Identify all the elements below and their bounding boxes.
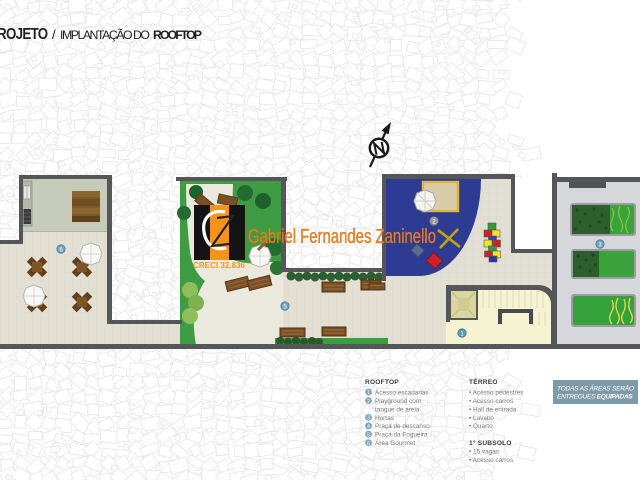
svg-text:tanque de areia: tanque de areia bbox=[375, 406, 420, 413]
svg-text:CRECI 32.836: CRECI 32.836 bbox=[193, 261, 246, 270]
svg-text:TÉRREO: TÉRREO bbox=[469, 377, 498, 386]
svg-text:Acesso escadarias: Acesso escadarias bbox=[375, 389, 429, 396]
svg-text:Área Gourmet: Área Gourmet bbox=[375, 438, 415, 447]
svg-text:• Acesso carros: • Acesso carros bbox=[469, 398, 513, 405]
svg-text:ENTREGUES EQUIPADAS: ENTREGUES EQUIPADAS bbox=[557, 394, 633, 401]
svg-text:/: / bbox=[52, 27, 56, 42]
svg-text:2: 2 bbox=[367, 399, 370, 405]
svg-text:5: 5 bbox=[367, 432, 370, 438]
svg-text:• Acesso pedestres: • Acesso pedestres bbox=[469, 389, 523, 396]
svg-text:3: 3 bbox=[367, 416, 370, 422]
svg-text:Praça de descanso: Praça de descanso bbox=[375, 423, 430, 430]
svg-text:1: 1 bbox=[367, 390, 370, 396]
svg-text:6: 6 bbox=[367, 441, 370, 447]
svg-text:Hortas: Hortas bbox=[375, 415, 394, 422]
svg-text:ROOFTOP: ROOFTOP bbox=[153, 28, 202, 42]
svg-text:IMPLANTAÇÃO DO: IMPLANTAÇÃO DO bbox=[60, 28, 150, 42]
svg-text:• Quarto: • Quarto bbox=[469, 423, 493, 430]
svg-text:ROOFTOP: ROOFTOP bbox=[365, 379, 399, 386]
svg-text:Praça da Fogueira: Praça da Fogueira bbox=[375, 432, 428, 439]
svg-text:Gabriel Fernandes Zaninello: Gabriel Fernandes Zaninello bbox=[248, 225, 436, 248]
svg-text:• 15 vagas: • 15 vagas bbox=[469, 448, 499, 455]
svg-text:1° SUBSOLO: 1° SUBSOLO bbox=[469, 439, 512, 447]
svg-text:TODAS AS ÁREAS SERÃO: TODAS AS ÁREAS SERÃO bbox=[557, 384, 634, 393]
svg-text:4: 4 bbox=[367, 424, 370, 430]
svg-text:• Acesso carros: • Acesso carros bbox=[469, 457, 513, 464]
svg-text:• Hall de entrada: • Hall de entrada bbox=[469, 406, 517, 413]
svg-text:PROJETO: PROJETO bbox=[0, 26, 48, 43]
svg-text:• Lavabo: • Lavabo bbox=[469, 415, 494, 422]
svg-text:Playground com: Playground com bbox=[375, 398, 421, 405]
